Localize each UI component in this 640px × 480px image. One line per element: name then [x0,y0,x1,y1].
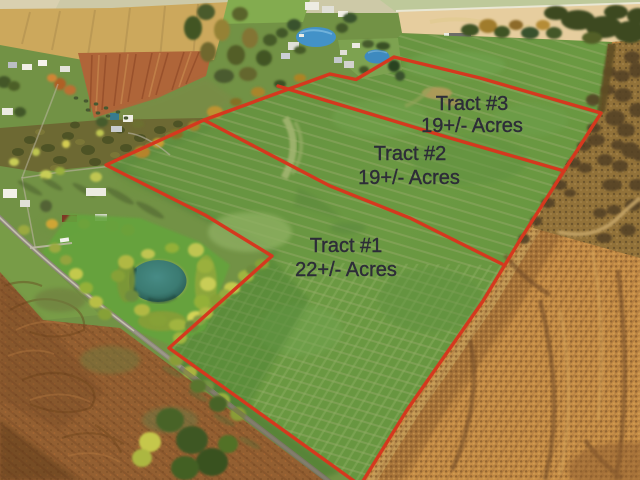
svg-text:22+/- Acres: 22+/- Acres [295,259,397,281]
svg-text:19+/- Acres: 19+/- Acres [358,167,460,189]
svg-text:Tract #2: Tract #2 [374,143,447,165]
svg-text:19+/- Acres: 19+/- Acres [421,115,523,137]
svg-text:Tract #1: Tract #1 [310,235,383,257]
svg-text:Tract #3: Tract #3 [436,93,509,115]
